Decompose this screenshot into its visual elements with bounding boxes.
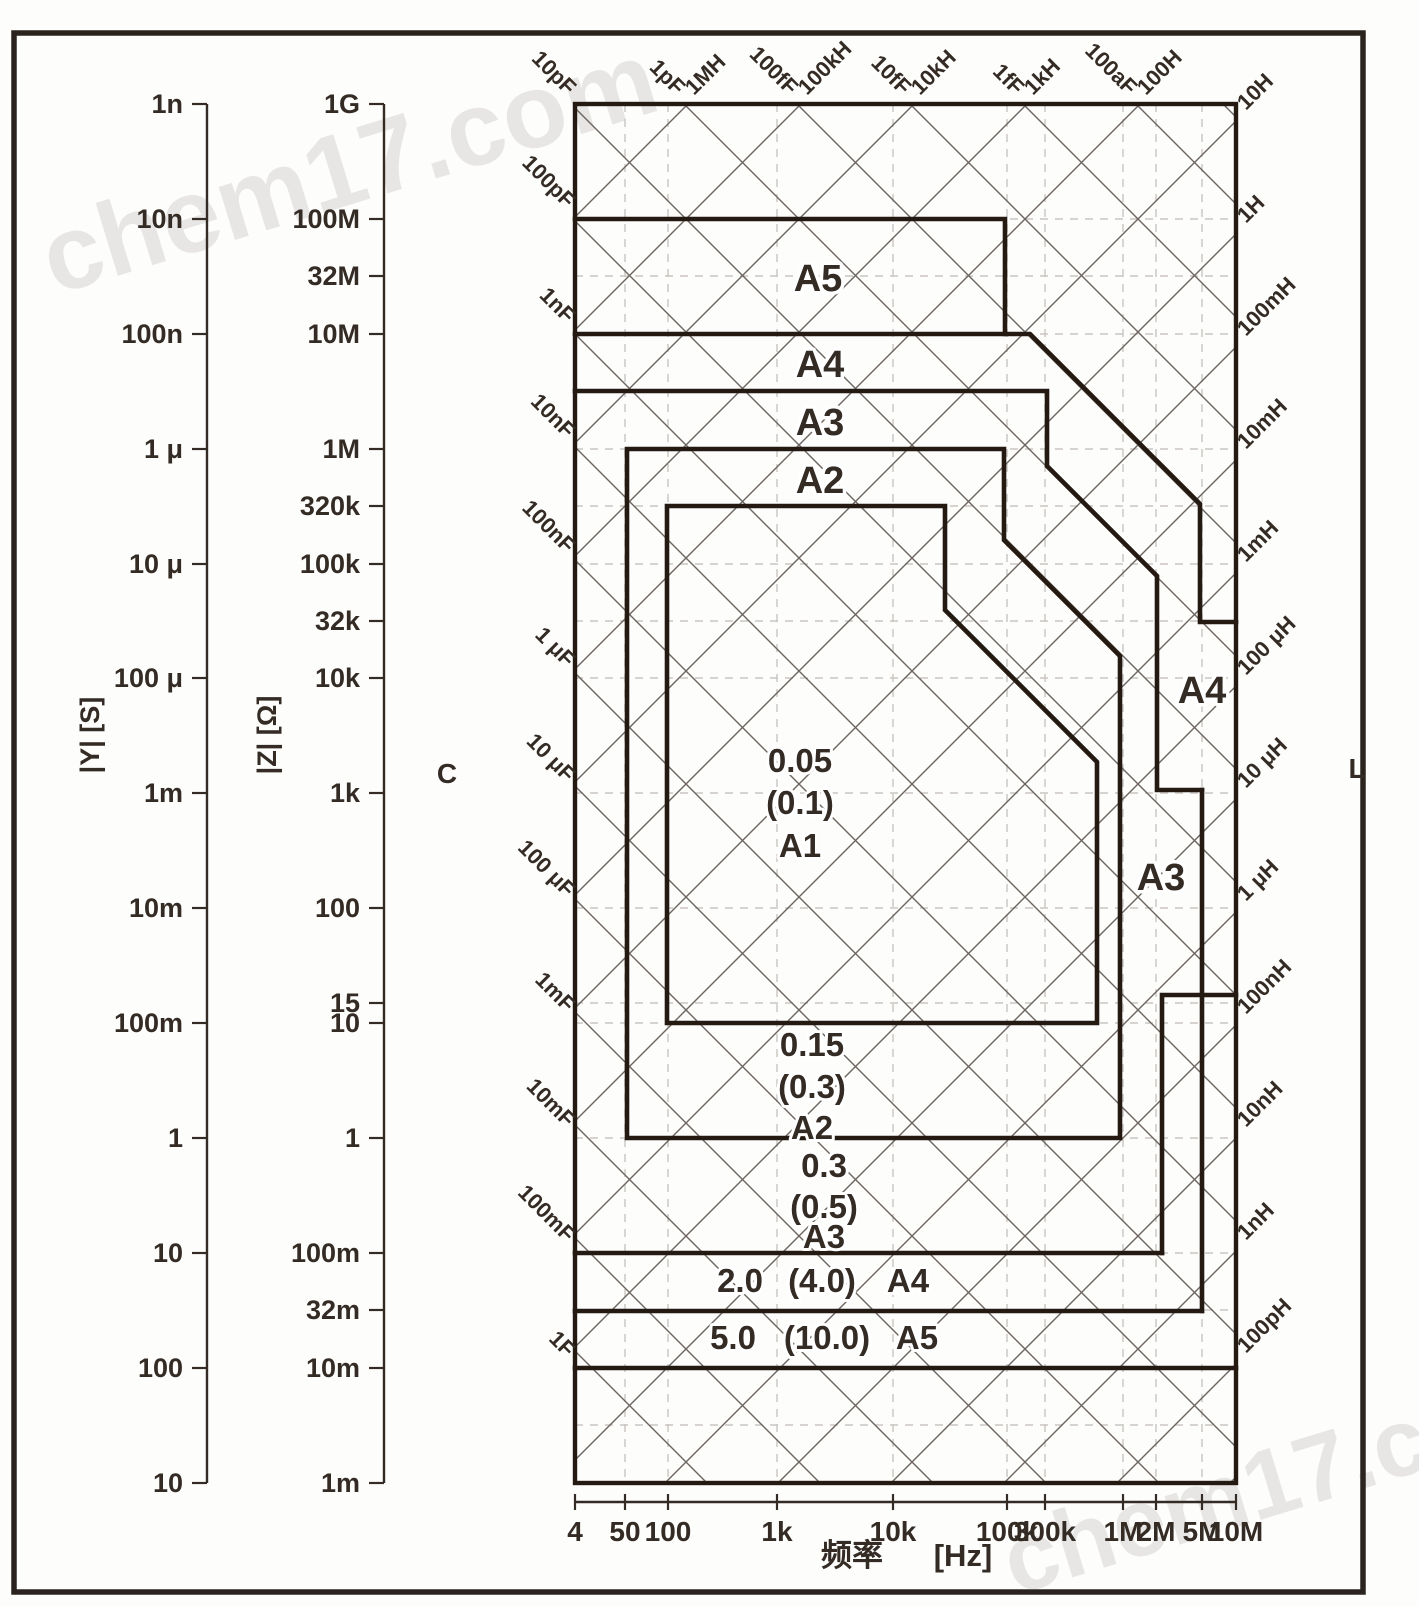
accuracy-label: A5 — [896, 1319, 938, 1356]
y-axis-admittance-tick-label: 1m — [144, 778, 183, 808]
y-axis-admittance-tick-label: 100n — [121, 319, 183, 349]
accuracy-label: 0.3 — [801, 1147, 847, 1184]
accuracy-label: A2 — [791, 1109, 833, 1146]
y-axis-admittance-tick-label: 100 — [138, 1353, 183, 1383]
z-axis-impedance-tick-label: 100m — [291, 1238, 360, 1268]
z-axis-impedance-tick-label: 1G — [324, 89, 360, 119]
accuracy-label: 2.0 — [717, 1262, 763, 1299]
z-axis-impedance-tick-label: 10k — [315, 663, 361, 693]
lcr-accuracy-chart: chem17.comchem17.com1n10n100n1 μ10 μ100 … — [0, 0, 1419, 1606]
frequency-tick-label: 1k — [761, 1516, 793, 1547]
z-axis-impedance-tick-label: 1m — [321, 1468, 360, 1498]
inductance-axis-label: L — [1348, 753, 1365, 784]
frequency-axis-title: 频率 — [821, 1538, 883, 1573]
y-axis-admittance-tick-label: 1 μ — [144, 434, 183, 464]
z-axis-impedance-tick-label: 320k — [300, 491, 361, 521]
z-axis-impedance-tick-label: 100M — [292, 204, 360, 234]
y-axis-admittance-tick-label: 100m — [114, 1008, 183, 1038]
frequency-tick-label: 100 — [645, 1516, 692, 1547]
accuracy-label: (4.0) — [788, 1262, 856, 1299]
y-axis-admittance-tick-label: 1n — [151, 89, 183, 119]
y-axis-admittance-tick-label: 1 — [168, 1123, 183, 1153]
y-axis-admittance-tick-label: 10 — [153, 1238, 183, 1268]
accuracy-label: 5.0 — [710, 1319, 756, 1356]
region-label-A2: A2 — [796, 460, 845, 502]
accuracy-label: 0.15 — [780, 1026, 844, 1063]
accuracy-label: (0.1) — [766, 784, 834, 821]
frequency-tick-label: 300k — [1014, 1516, 1077, 1547]
frequency-tick-label: 4 — [567, 1516, 583, 1547]
z-axis-impedance-tick-label: 10m — [306, 1353, 360, 1383]
region-label-A5: A5 — [794, 258, 843, 300]
accuracy-label: A1 — [779, 827, 821, 864]
z-axis-impedance-tick-label: 100k — [300, 549, 361, 579]
region-label-A3: A3 — [796, 402, 845, 444]
region-label-A4: A4 — [1178, 670, 1227, 712]
y-axis-admittance-tick-label: 10 — [153, 1468, 183, 1498]
y-axis-admittance-tick-label: 10 μ — [129, 549, 183, 579]
z-axis-impedance-tick-label: 32M — [307, 261, 360, 291]
region-label-A3: A3 — [1137, 857, 1186, 899]
z-axis-impedance-tick-label: 10M — [307, 319, 360, 349]
frequency-axis-unit: [Hz] — [934, 1538, 993, 1573]
frequency-tick-label: 50 — [609, 1516, 640, 1547]
accuracy-label: 0.05 — [768, 742, 832, 779]
accuracy-label: (10.0) — [784, 1319, 870, 1356]
region-label-A4: A4 — [796, 344, 845, 386]
frequency-tick-label: 10M — [1209, 1516, 1263, 1547]
accuracy-label: A4 — [887, 1262, 930, 1299]
z-axis-impedance-tick-label: 1M — [322, 434, 360, 464]
accuracy-label: A3 — [803, 1218, 845, 1255]
y-axis-admittance-title: |Y| [S] — [75, 697, 105, 774]
capacitance-axis-label: C — [437, 758, 457, 789]
y-axis-admittance-tick-label: 10n — [136, 204, 183, 234]
y-axis-admittance-tick-label: 100 μ — [114, 663, 183, 693]
accuracy-chart-page: chem17.comchem17.com1n10n100n1 μ10 μ100 … — [0, 0, 1419, 1606]
accuracy-label: (0.3) — [778, 1068, 846, 1105]
y-axis-admittance-tick-label: 10m — [129, 893, 183, 923]
z-axis-impedance-tick-label: 1 — [345, 1123, 360, 1153]
z-axis-impedance-tick-label: 32k — [315, 606, 361, 636]
z-axis-impedance-tick-label: 32m — [306, 1295, 360, 1325]
z-axis-impedance-title: |Z| [Ω] — [252, 696, 282, 775]
frequency-tick-label: 2M — [1137, 1516, 1176, 1547]
z-axis-impedance-tick-label: 15 — [330, 988, 360, 1018]
z-axis-impedance-tick-label: 100 — [315, 893, 360, 923]
z-axis-impedance-tick-label: 1k — [330, 778, 361, 808]
